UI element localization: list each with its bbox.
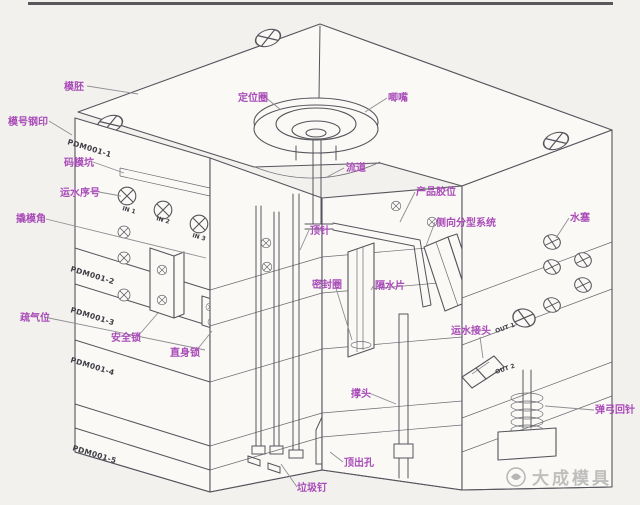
label-pry-corner: 撬模角	[16, 212, 46, 225]
label-seal-ring: 密封圈	[312, 278, 342, 291]
label-water-connector: 运水接头	[451, 324, 491, 337]
label-vent-slot: 疏气位	[20, 311, 50, 324]
label-runner: 流道	[346, 161, 366, 174]
label-support-pillar: 撑头	[351, 387, 371, 400]
label-spring-return-pin: 弹弓回针	[595, 403, 635, 416]
label-mold-base: 模胚	[64, 80, 84, 93]
label-clamp-slot: 码模坑	[64, 156, 94, 169]
label-straight-lock: 直身锁	[170, 346, 200, 359]
top-border-line	[28, 2, 613, 5]
label-product-cavity: 产品胶位	[416, 185, 456, 198]
label-water-plug: 水塞	[569, 211, 591, 224]
label-safety-lock: 安全锁	[111, 331, 141, 344]
label-side-parting-system: 侧向分型系统	[436, 216, 496, 229]
label-water-baffle: 隔水片	[375, 279, 405, 292]
diagram-canvas: PDM001-1 PDM001-2 PDM001-3 PDM001-4 PDM0…	[0, 0, 640, 505]
label-stop-pin: 垃圾钉	[297, 481, 327, 494]
label-knockout-hole: 顶出孔	[344, 456, 374, 469]
mold-left-face	[75, 118, 228, 492]
watermark-text: 大成模具	[532, 468, 612, 489]
mold-structure-diagram: PDM001-1 PDM001-2 PDM001-3 PDM001-4 PDM0…	[0, 0, 640, 505]
mold-right-face	[462, 130, 612, 490]
label-sprue-bushing: 唧嘴	[388, 91, 408, 104]
label-mold-number-stamp: 模号钢印	[8, 115, 48, 128]
label-waterline-number: 运水序号	[60, 186, 100, 199]
left-section-face	[210, 158, 328, 492]
label-ejector-pin: 顶针	[310, 224, 330, 237]
label-locating-ring: 定位圈	[238, 91, 268, 104]
